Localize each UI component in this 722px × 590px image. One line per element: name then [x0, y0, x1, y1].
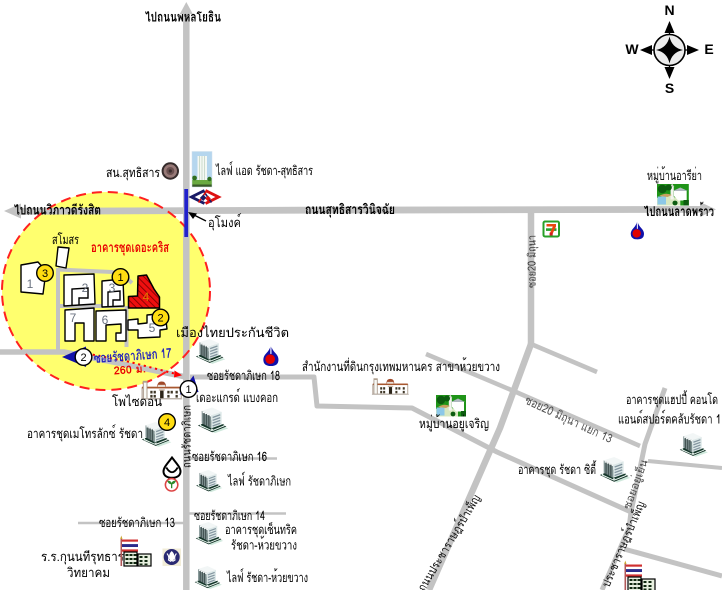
svg-text:7: 7 — [70, 311, 77, 325]
svg-text:N: N — [664, 2, 674, 18]
svg-text:4: 4 — [143, 290, 150, 304]
svg-text:2: 2 — [80, 352, 86, 364]
svg-text:2: 2 — [157, 312, 163, 324]
svg-text:6: 6 — [102, 313, 109, 327]
svg-text:4: 4 — [164, 417, 170, 429]
svg-text:1: 1 — [185, 384, 191, 396]
svg-text:3: 3 — [42, 268, 48, 280]
svg-text:S: S — [665, 80, 674, 96]
svg-text:W: W — [625, 41, 639, 57]
svg-text:1: 1 — [27, 277, 34, 291]
svg-text:2: 2 — [82, 281, 89, 295]
svg-text:1: 1 — [117, 272, 123, 284]
svg-text:E: E — [704, 41, 713, 57]
